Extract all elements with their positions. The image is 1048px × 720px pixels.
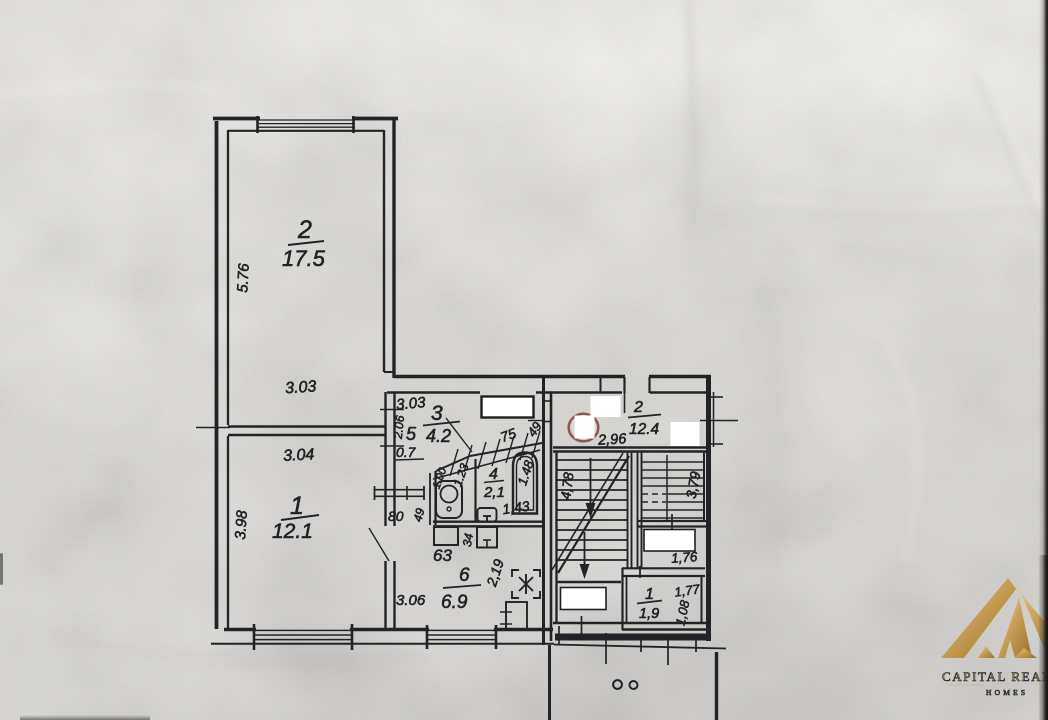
svg-text:2,96: 2,96 bbox=[597, 431, 628, 449]
svg-text:4,78: 4,78 bbox=[557, 471, 576, 500]
svg-text:3.04: 3.04 bbox=[283, 446, 315, 465]
svg-text:34: 34 bbox=[460, 532, 476, 548]
svg-text:63: 63 bbox=[433, 546, 452, 565]
svg-text:3: 3 bbox=[431, 402, 443, 425]
svg-text:6: 6 bbox=[459, 565, 470, 586]
svg-text:2,1: 2,1 bbox=[483, 484, 505, 501]
svg-text:4.2: 4.2 bbox=[426, 426, 451, 446]
svg-text:3.98: 3.98 bbox=[232, 509, 251, 540]
svg-text:12.1: 12.1 bbox=[272, 520, 313, 543]
svg-text:1,76: 1,76 bbox=[671, 549, 699, 566]
svg-text:HOMES: HOMES bbox=[986, 688, 1028, 697]
svg-text:CAPITAL REALT: CAPITAL REALT bbox=[942, 669, 1048, 684]
svg-text:5: 5 bbox=[406, 424, 417, 444]
svg-text:6.9: 6.9 bbox=[441, 592, 468, 613]
svg-text:1: 1 bbox=[645, 586, 654, 603]
svg-text:1,9: 1,9 bbox=[639, 606, 659, 622]
svg-text:3.03: 3.03 bbox=[285, 378, 317, 397]
svg-text:80: 80 bbox=[388, 508, 404, 524]
svg-text:1: 1 bbox=[290, 492, 304, 520]
svg-text:12.4: 12.4 bbox=[629, 421, 660, 438]
svg-text:0.7: 0.7 bbox=[396, 444, 417, 460]
svg-text:2: 2 bbox=[633, 399, 643, 416]
svg-text:3.03: 3.03 bbox=[396, 394, 427, 414]
svg-text:2: 2 bbox=[297, 216, 312, 244]
svg-text:17.5: 17.5 bbox=[282, 246, 326, 271]
svg-text:5.76: 5.76 bbox=[234, 262, 253, 293]
svg-text:2.06: 2.06 bbox=[391, 414, 408, 440]
svg-text:3.06: 3.06 bbox=[396, 592, 426, 609]
